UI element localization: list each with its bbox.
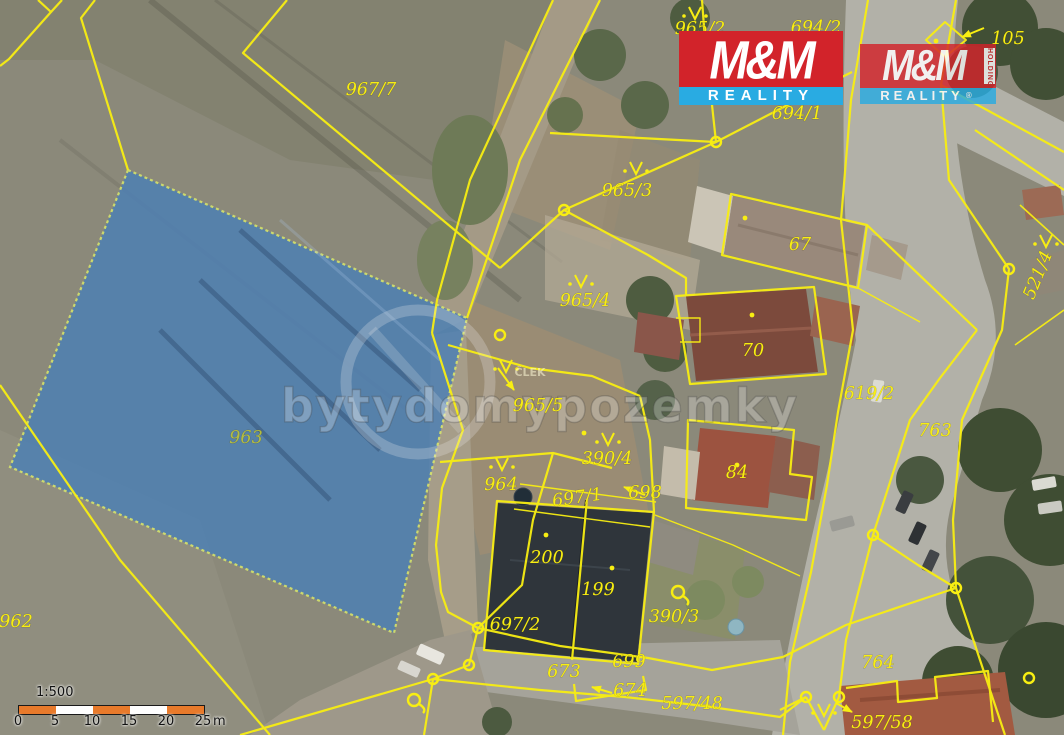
map-viewport[interactable]: bytydomypozemky ČLEK 967/7965/2694/2694/… xyxy=(0,0,1064,735)
parcel-label-694-1: 694/1 xyxy=(772,104,822,124)
scale-ratio: 1:500 xyxy=(36,685,73,700)
scale-bar-segments xyxy=(18,705,205,715)
scale-bar: 1:500 0510152025 m xyxy=(8,684,238,732)
parcel-label-674: 674 xyxy=(613,681,646,701)
mm-holding-title: M&M xyxy=(882,44,974,88)
scale-segment xyxy=(130,706,167,714)
mm-holding-vertical-label: HOLDING xyxy=(984,48,995,84)
parcel-label-597-58: 597/58 xyxy=(851,713,913,733)
scale-tick-10: 10 xyxy=(84,714,101,729)
mm-holding-logo: M&M HOLDING REALITY ® xyxy=(860,44,996,104)
scale-unit: m xyxy=(213,714,226,729)
parcel-label-105: 105 xyxy=(991,29,1024,49)
aerial-map-canvas[interactable]: bytydomypozemky ČLEK 967/7965/2694/2694/… xyxy=(0,0,1064,735)
parcel-label-619-2: 619/2 xyxy=(844,384,894,404)
scale-segment xyxy=(167,706,204,714)
parcel-label-965-5: 965/5 xyxy=(513,396,563,416)
scale-tick-25: 25 xyxy=(195,714,212,729)
parcel-label-673: 673 xyxy=(547,662,580,682)
watermark-badge: ČLEK xyxy=(514,366,546,379)
scale-tick-20: 20 xyxy=(158,714,175,729)
parcel-label-597-48: 597/48 xyxy=(661,694,723,714)
mm-reality-logo: M&M REALITY xyxy=(679,31,843,105)
parcel-label-390-3: 390/3 xyxy=(649,607,699,627)
mm-holding-reality-bar: REALITY ® xyxy=(860,88,996,104)
parcel-label-200: 200 xyxy=(529,548,563,568)
parcel-label-962: 962 xyxy=(0,612,33,632)
scale-segment xyxy=(93,706,130,714)
mm-holding-red-box: M&M HOLDING xyxy=(860,44,996,88)
parcel-label-965-3: 965/3 xyxy=(602,181,652,201)
scale-tick-5: 5 xyxy=(51,714,59,729)
parcel-label-963: 963 xyxy=(229,428,262,448)
mm-logo-title: M&M xyxy=(709,32,812,86)
parcel-label-199: 199 xyxy=(581,580,614,600)
parcel-label-84: 84 xyxy=(726,463,748,483)
parcel-label-964: 964 xyxy=(484,475,517,495)
parcel-label-967-7: 967/7 xyxy=(346,80,397,100)
scale-tick-15: 15 xyxy=(121,714,138,729)
parcel-label-390-4: 390/4 xyxy=(582,449,632,469)
scale-segment xyxy=(56,706,93,714)
parcel-label-698: 698 xyxy=(628,483,661,503)
scale-segment xyxy=(19,706,56,714)
parcel-label-965-4: 965/4 xyxy=(560,291,610,311)
parcel-label-697-2: 697/2 xyxy=(490,615,540,635)
parcel-label-70: 70 xyxy=(742,341,764,361)
scale-tick-0: 0 xyxy=(14,714,22,729)
mm-logo-red-box: M&M xyxy=(679,31,843,87)
parcel-label-699: 699 xyxy=(612,652,645,672)
parcel-label-763: 763 xyxy=(918,421,951,441)
parcel-label-67: 67 xyxy=(789,235,812,255)
parcel-label-764: 764 xyxy=(861,653,894,673)
